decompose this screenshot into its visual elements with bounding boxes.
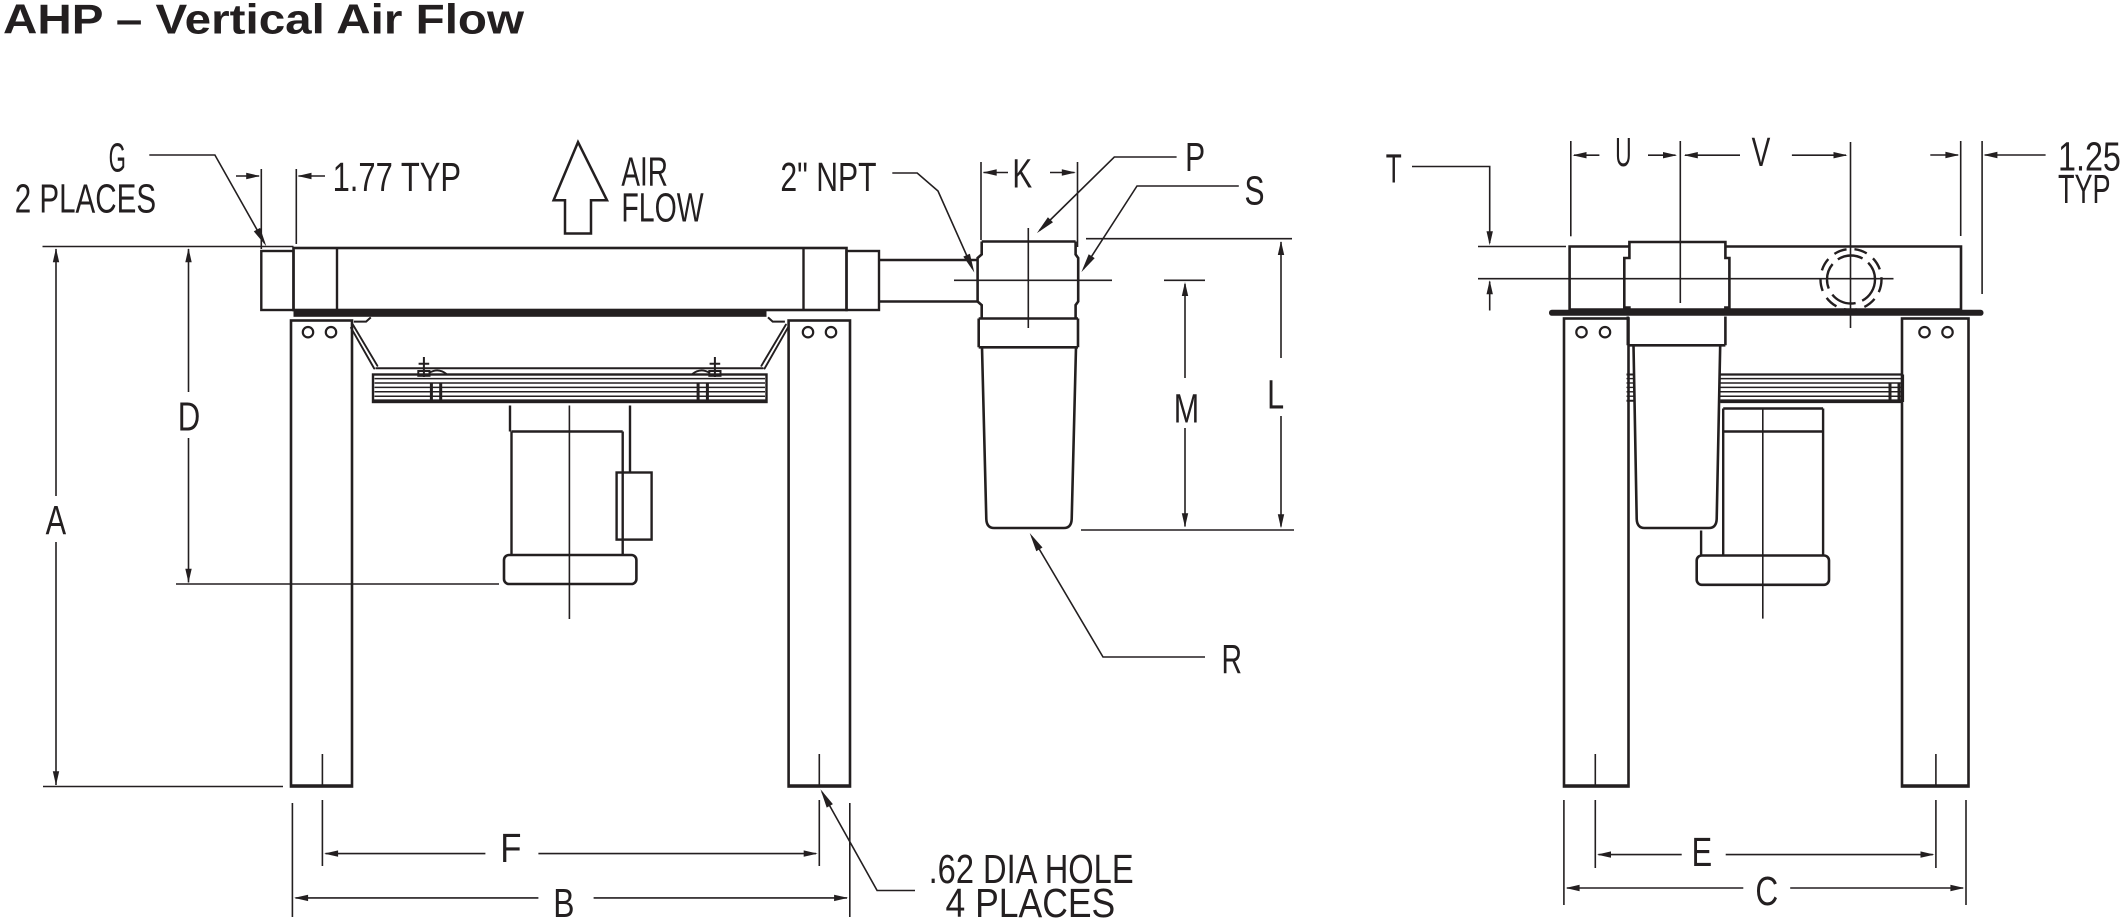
- svg-text:AHP – Vertical Air Flow: AHP – Vertical Air Flow: [3, 0, 524, 43]
- svg-text:B: B: [553, 880, 574, 919]
- svg-text:A: A: [46, 497, 67, 543]
- svg-text:U: U: [1615, 129, 1632, 175]
- svg-text:1.77 TYP: 1.77 TYP: [333, 154, 461, 200]
- svg-text:P: P: [1185, 134, 1205, 180]
- svg-text:FLOW: FLOW: [621, 184, 704, 230]
- svg-text:D: D: [178, 393, 201, 439]
- svg-text:L: L: [1267, 371, 1284, 417]
- svg-text:M: M: [1174, 386, 1199, 432]
- svg-text:E: E: [1692, 829, 1713, 875]
- svg-text:2" NPT: 2" NPT: [780, 154, 876, 200]
- svg-text:G: G: [109, 135, 126, 181]
- svg-text:F: F: [500, 825, 521, 871]
- svg-text:T: T: [1386, 146, 1402, 192]
- svg-text:K: K: [1012, 151, 1032, 197]
- svg-text:V: V: [1752, 129, 1771, 175]
- svg-text:C: C: [1755, 868, 1778, 914]
- svg-text:TYP: TYP: [2058, 166, 2111, 212]
- svg-text:4 PLACES: 4 PLACES: [946, 880, 1116, 919]
- svg-text:S: S: [1245, 168, 1265, 214]
- svg-text:R: R: [1222, 636, 1243, 682]
- svg-text:2 PLACES: 2 PLACES: [15, 176, 156, 222]
